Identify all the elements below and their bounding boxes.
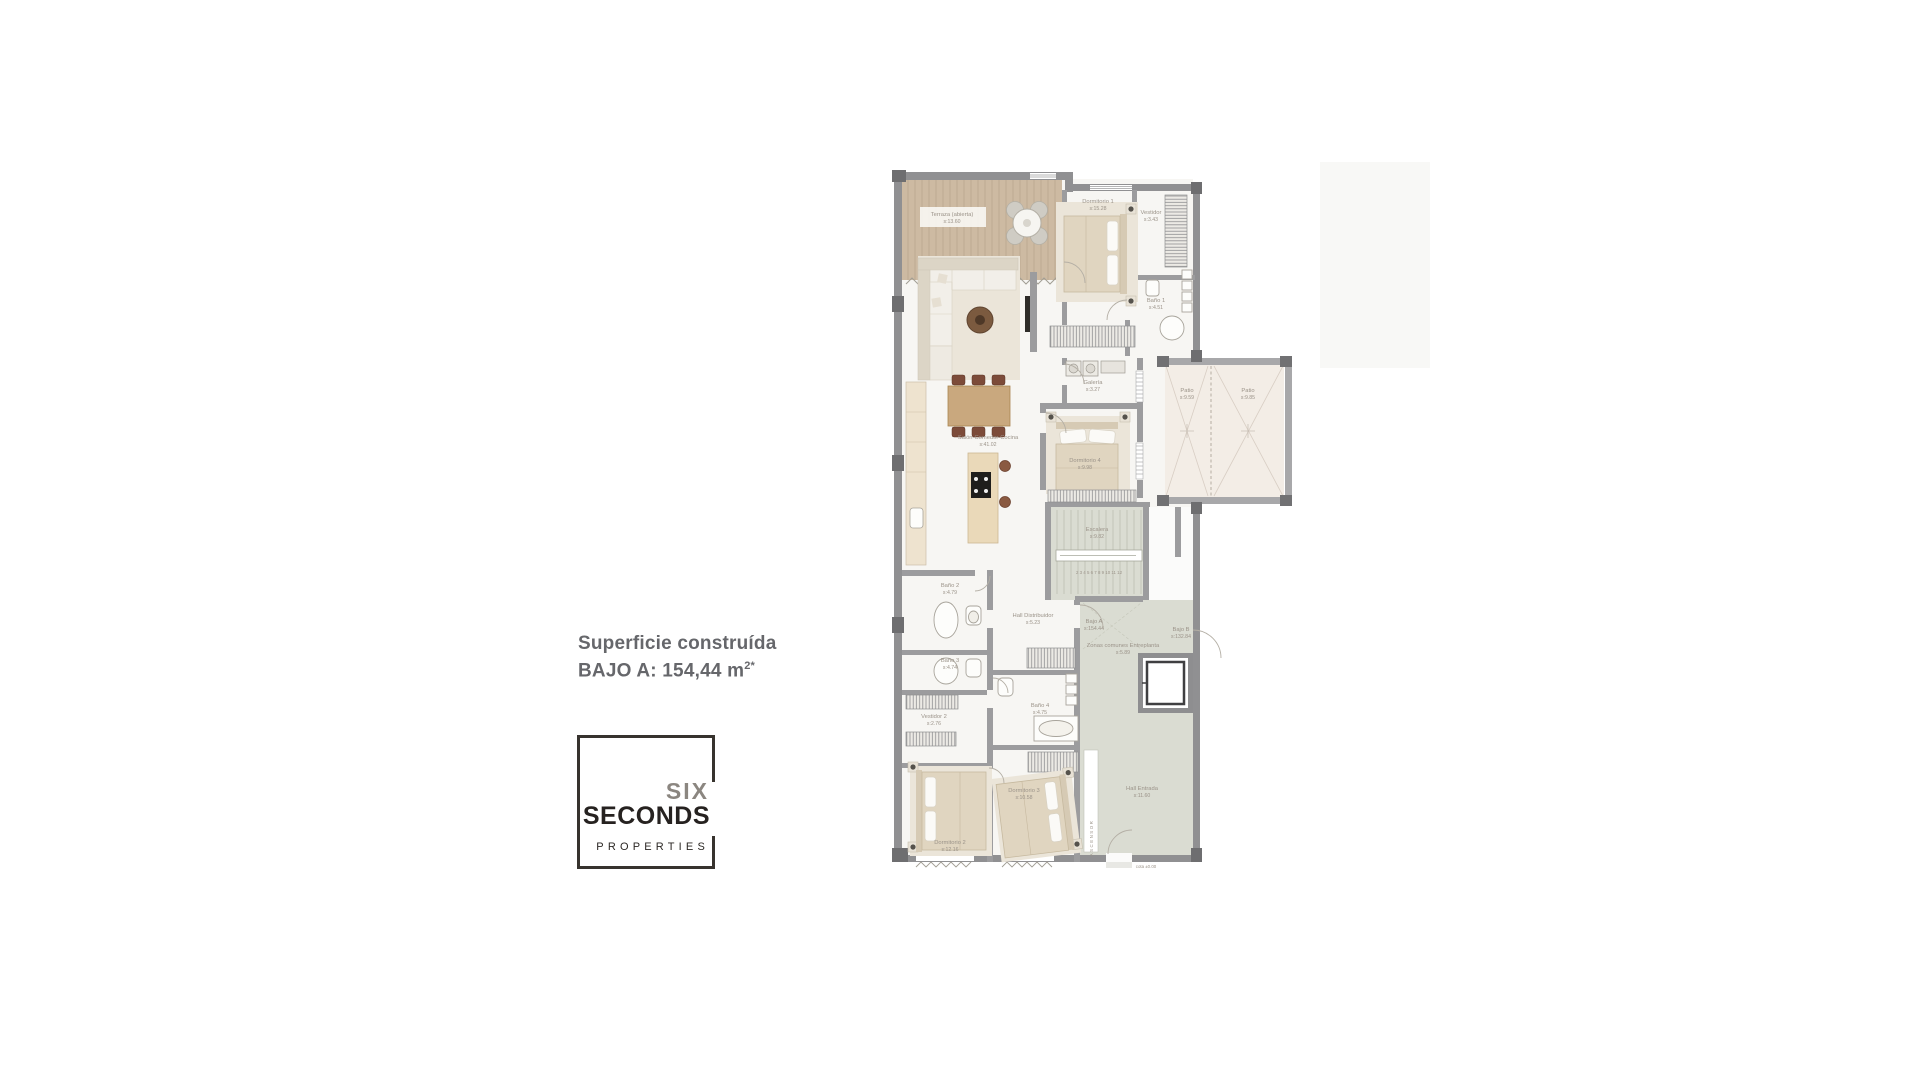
room-label-vestidor2: Vestidor 2: [921, 714, 947, 720]
footnote-superscript: 2*: [744, 660, 755, 672]
tv: [1025, 296, 1030, 332]
walkin-closet-shelves: [1165, 195, 1187, 267]
room-area-galeria: s:3.27: [1086, 387, 1100, 393]
room-area-vestidor2: s:2.76: [927, 721, 941, 727]
room-area-bano2: s:4.79: [943, 590, 957, 596]
bedroom1-furniture: [1056, 202, 1138, 306]
surface-summary-line1: Superficie construída: [578, 632, 776, 655]
page: Superficie construída BAJO A: 154,44 m2*…: [0, 0, 1920, 1080]
room-label-dormitorio2: Dormitorio 2: [934, 840, 966, 846]
entry-door-gap: [1106, 853, 1132, 862]
bedroom4-wardrobe: [1048, 490, 1136, 502]
room-label-patio1: Patio: [1180, 388, 1193, 394]
stool: [1000, 461, 1011, 472]
room-label-patio2: Patio: [1241, 388, 1254, 394]
kitchen-sink: [910, 508, 923, 528]
bedroom1-wardrobe: [1050, 326, 1135, 347]
neighbor-block: [1320, 162, 1430, 368]
cooktop: [971, 472, 991, 498]
room-label-hall-entrada: Hall Entrada: [1126, 786, 1159, 792]
closet2-wardrobe-b: [906, 732, 956, 746]
logo-word-properties: PROPERTIES: [596, 841, 709, 853]
room-label-salon: Salón-Comedor-Cocina: [958, 435, 1019, 441]
room-area-terraza: s:13.60: [943, 219, 960, 225]
room-area-dormitorio2: s:12.16: [941, 847, 958, 853]
room-label-galeria: Galería: [1083, 380, 1103, 386]
room-label-bano4: Baño 4: [1031, 703, 1050, 709]
entry-step: [1106, 862, 1132, 868]
room-area-dormitorio3: s:10.58: [1015, 795, 1032, 801]
room-area-vestidor: s:3.43: [1144, 217, 1158, 223]
room-label-terraza: Terraza (abierta): [931, 212, 974, 218]
elevator: [1138, 653, 1193, 713]
surface-summary: Superficie construída BAJO A: 154,44 m2*: [578, 632, 776, 682]
room-label-dormitorio4: Dormitorio 4: [1069, 458, 1101, 464]
room-label-escalera: Escalera: [1086, 527, 1109, 533]
room-area-dormitorio4: s:9.98: [1078, 465, 1092, 471]
bedroom4-furniture: [1046, 412, 1130, 494]
room-area-patio2: s:9.85: [1241, 395, 1255, 401]
room-area-salon: s:41.02: [979, 442, 996, 448]
room-label-dormitorio3: Dormitorio 3: [1008, 788, 1040, 794]
room-area-bano4: s:4.75: [1033, 710, 1047, 716]
surface-summary-line2: BAJO A: 154,44 m2*: [578, 655, 776, 682]
six-seconds-logo: SIX SECONDS PROPERTIES: [577, 735, 715, 869]
room-area-patio1: s:9.59: [1180, 395, 1194, 401]
cota-label: cota ±0.00: [1136, 864, 1157, 869]
room-area-zonas-comunes: s:5.89: [1116, 650, 1130, 656]
room-label-hall-distribuidor: Hall Distribuidor: [1013, 613, 1054, 619]
room-label-dormitorio1: Dormitorio 1: [1082, 199, 1114, 205]
closet2-wardrobe-a: [906, 695, 958, 709]
patios: [1165, 365, 1284, 497]
room-label-bano2: Baño 2: [941, 583, 959, 589]
room-area-hall-distribuidor: s:5.23: [1026, 620, 1040, 626]
room-area-bajo-b: s:132.84: [1171, 634, 1191, 640]
logo-word-seconds: SECONDS: [583, 802, 710, 831]
room-area-dormitorio1: s:15.28: [1089, 206, 1106, 212]
room-label-vestidor: Vestidor: [1141, 210, 1162, 216]
room-label-bano1: Baño 1: [1147, 298, 1165, 304]
room-area-escalera: s:9.82: [1090, 534, 1104, 540]
room-label-zonas-comunes: Zonas comunes Entreplanta: [1087, 643, 1160, 649]
stool: [1000, 497, 1011, 508]
room-area-bano3: s:4.74: [943, 665, 957, 671]
stairs-step-numbers: 2 3 4 5 6 7 8 9 10 11 12: [1076, 570, 1123, 575]
logo-word-six: SIX: [666, 778, 709, 805]
room-label-bano3: Baño 3: [941, 658, 959, 664]
room-area-bajo-a: s:154.44: [1084, 626, 1104, 632]
room-label-bajo-a: Bajo A: [1086, 619, 1103, 625]
bedroom3-furniture: [991, 767, 1083, 862]
room-label-bajo-b: Bajo B: [1172, 627, 1189, 633]
dining-set: [948, 375, 1010, 437]
ascensor-label: ASCENSOR: [1089, 820, 1094, 857]
hall-closet: [1027, 648, 1075, 668]
floor-plan: Terraza (abierta) s:13.60 Dormitorio 1 s…: [880, 150, 1440, 880]
room-area-bano1: s:4.51: [1149, 305, 1163, 311]
room-area-hall-entrada: s:11.60: [1134, 793, 1151, 799]
